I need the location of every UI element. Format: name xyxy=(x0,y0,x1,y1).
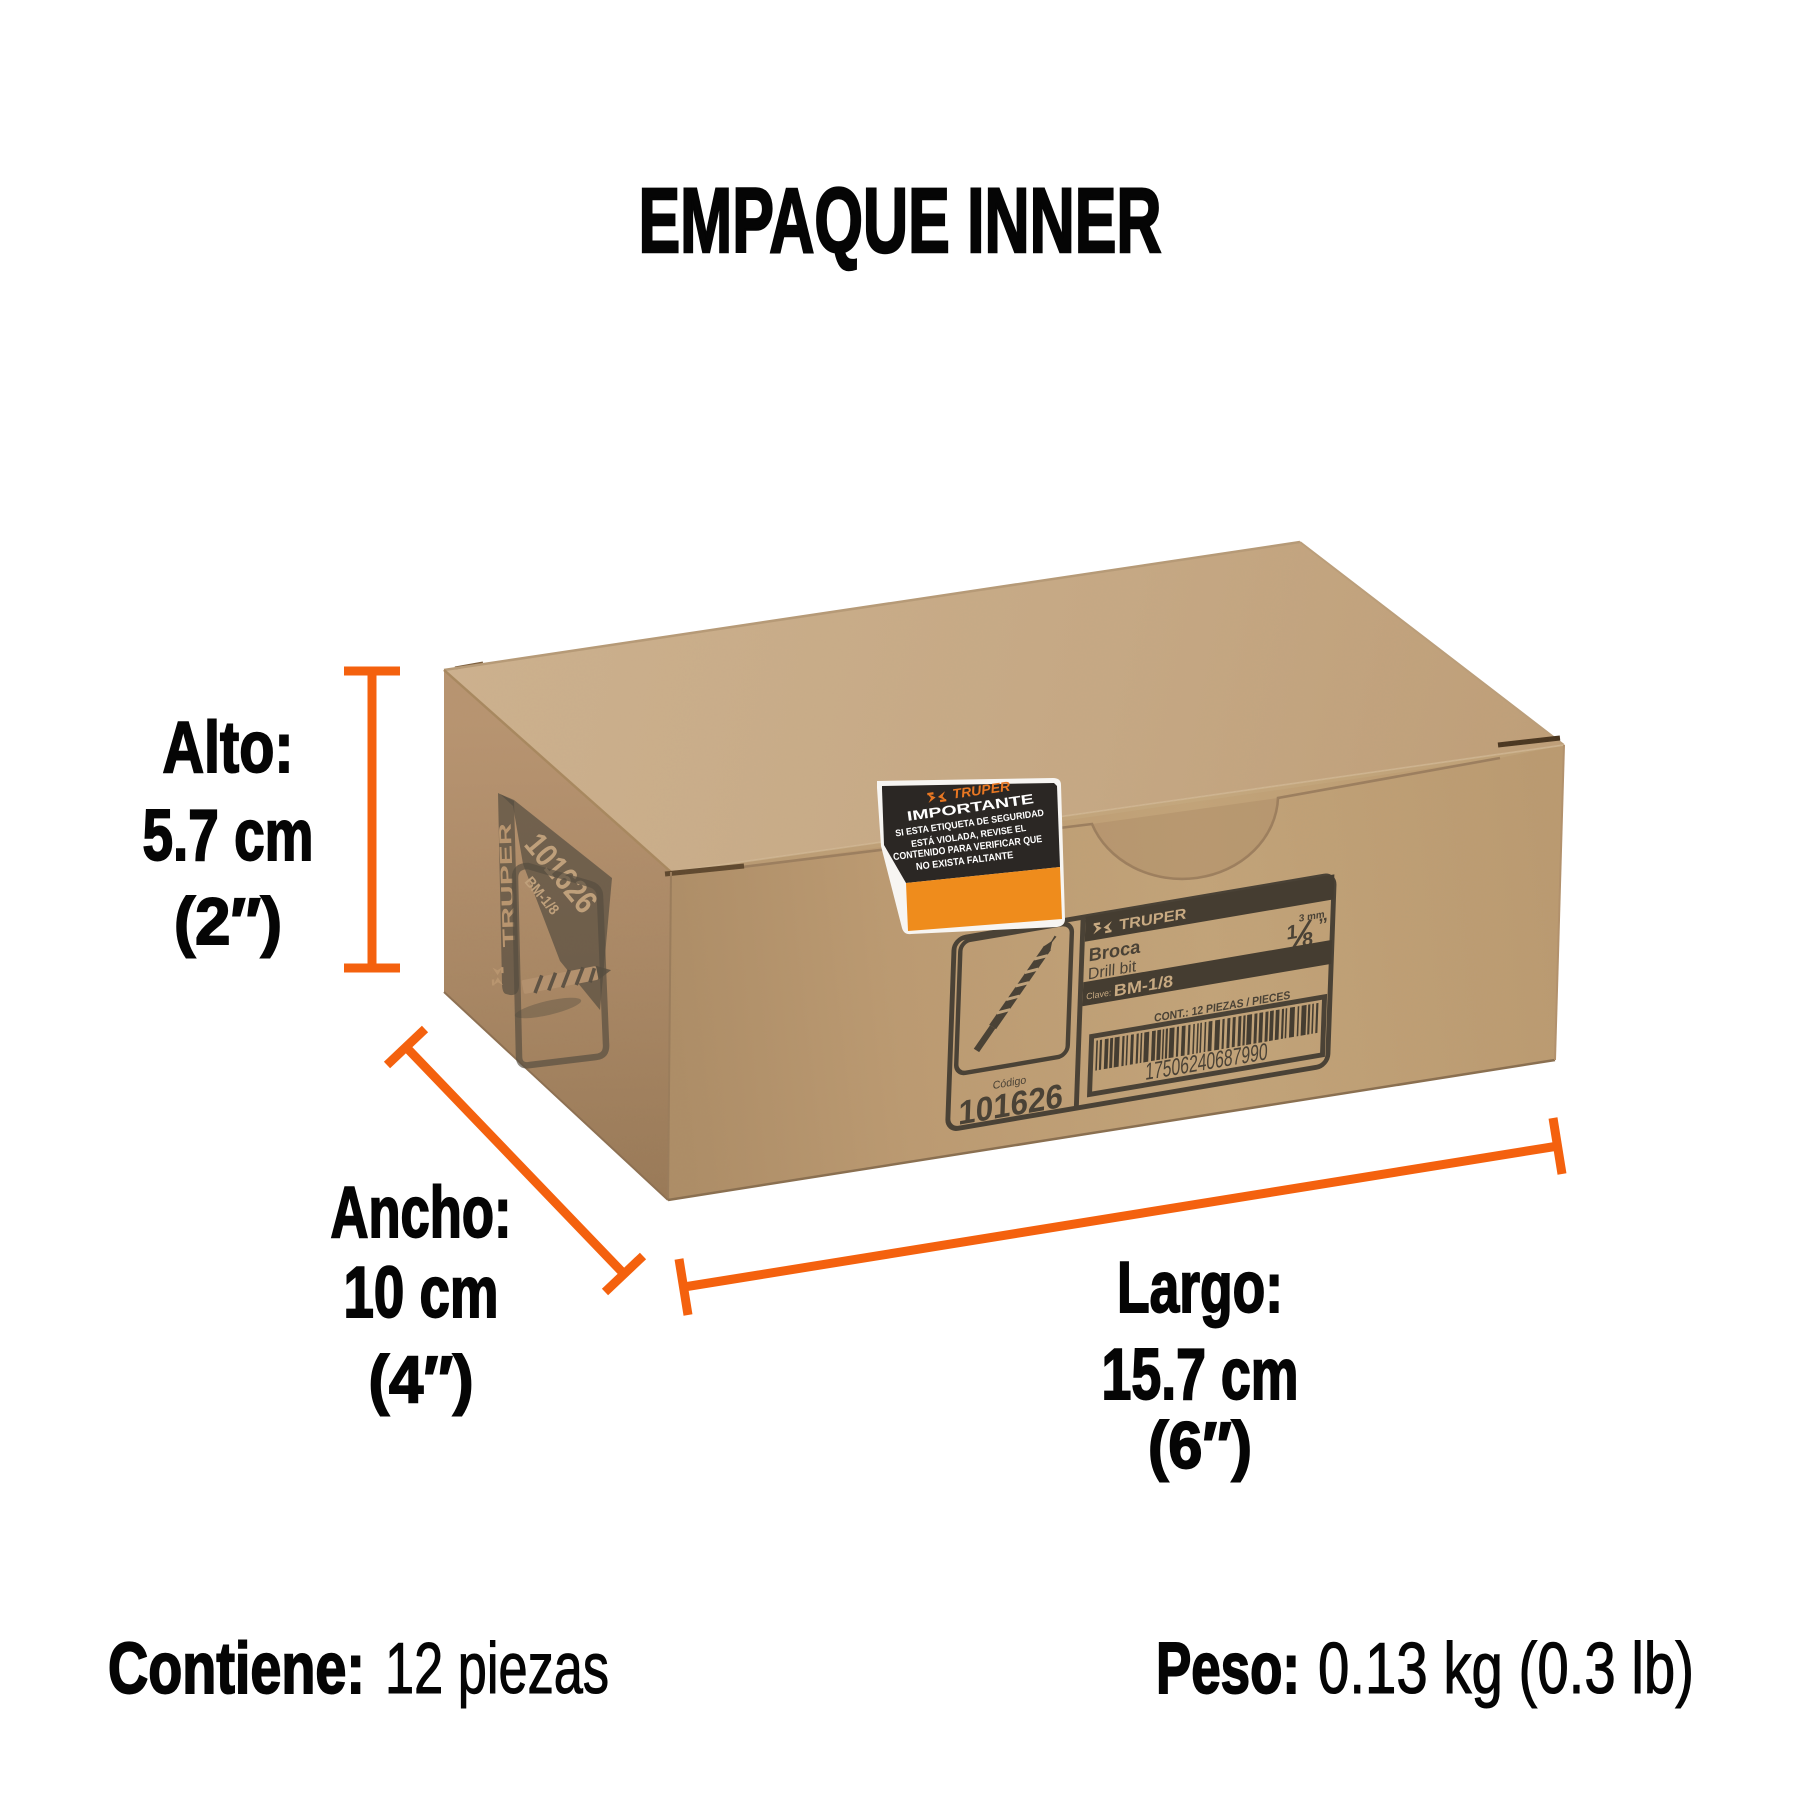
svg-text:12 piezas: 12 piezas xyxy=(385,1629,609,1709)
svg-text:10 cm: 10 cm xyxy=(344,1253,499,1333)
svg-text:(6″): (6″) xyxy=(1148,1408,1252,1482)
svg-text:0.13 kg (0.3 lb): 0.13 kg (0.3 lb) xyxy=(1318,1629,1694,1709)
svg-text:Contiene:: Contiene: xyxy=(108,1629,365,1709)
svg-text:Peso:: Peso: xyxy=(1156,1629,1300,1709)
svg-text:(2″): (2″) xyxy=(174,884,282,958)
svg-text:(4″): (4″) xyxy=(369,1342,474,1416)
svg-text:EMPAQUE INNER: EMPAQUE INNER xyxy=(639,170,1162,272)
svg-text:15.7 cm: 15.7 cm xyxy=(1102,1335,1299,1415)
svg-text:5.7 cm: 5.7 cm xyxy=(143,796,314,876)
svg-text:Ancho:: Ancho: xyxy=(331,1173,512,1253)
svg-text:Alto:: Alto: xyxy=(163,708,294,788)
svg-text:’’: ’’ xyxy=(1318,914,1328,936)
svg-text:Largo:: Largo: xyxy=(1117,1248,1283,1328)
